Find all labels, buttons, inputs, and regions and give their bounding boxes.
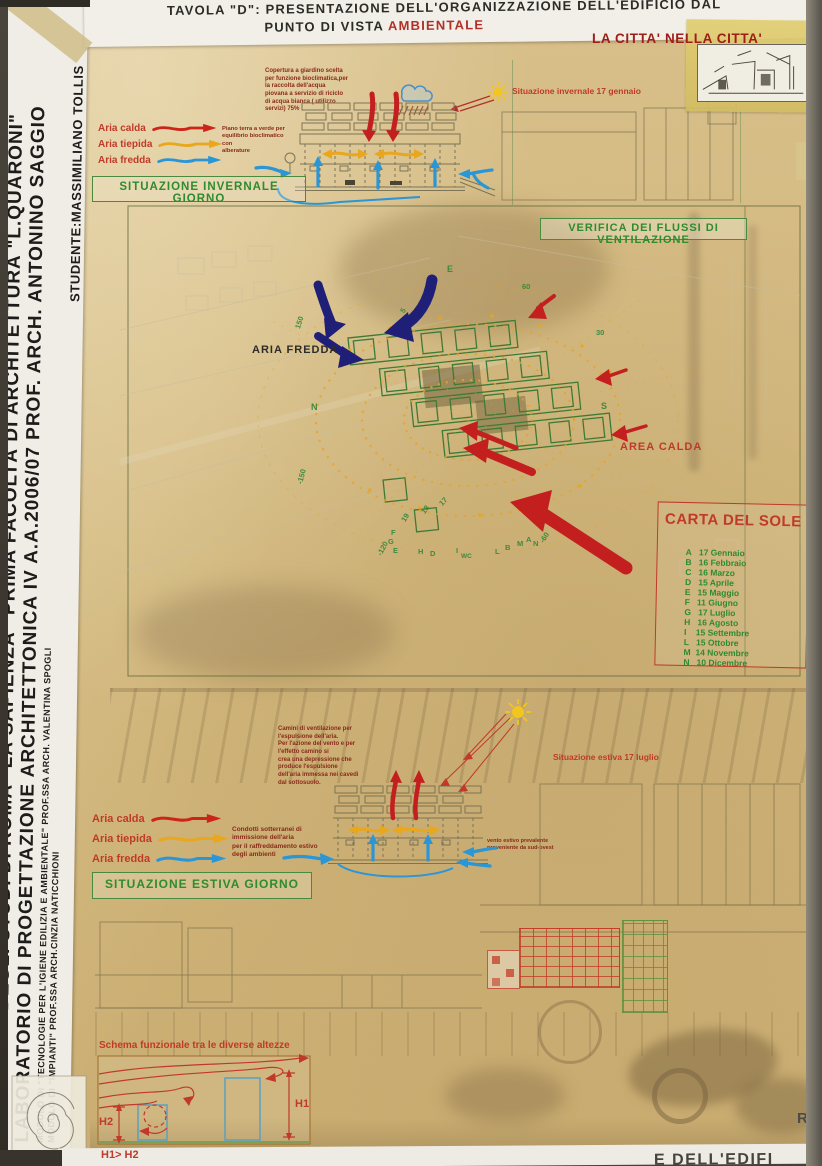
board-title-accent: AMBIENTALE — [388, 17, 484, 33]
red-checker-grid — [487, 950, 520, 989]
checker-cell — [506, 969, 514, 977]
winter-caption: Situazione invernale 17 gennaio — [512, 86, 641, 96]
ventilation-check-box: VERIFICA DEI FLUSSI DI VENTILAZIONE — [540, 218, 747, 240]
blue-arrow-icon — [157, 154, 223, 166]
blue-arrow-icon — [156, 852, 228, 865]
legend-aria-calda: Aria calda — [98, 122, 218, 134]
carta-letter: I — [684, 627, 687, 637]
height-schema-diagram — [95, 1048, 320, 1160]
legend-label: Aria fredda — [92, 853, 150, 865]
legend-aria-tiepida: Aria tiepida — [98, 138, 224, 150]
plan-tick: I — [456, 546, 458, 555]
schema-h1-label: H1 — [295, 1098, 309, 1110]
legend-aria-fredda: Aria fredda — [98, 154, 223, 166]
carta-del-sole-title: CARTA DEL SOLE — [658, 510, 808, 530]
next-board-edge: E DELL'EDIFI — [58, 1144, 822, 1166]
project-motto: LA CITTA' NELLA CITTA' — [592, 31, 818, 46]
checker-cell — [492, 978, 500, 986]
plan-tick: 30 — [596, 328, 604, 337]
orange-arrow-icon — [158, 138, 224, 150]
board-title-line2: PUNTO DI VISTA AMBIENTALE — [94, 15, 654, 37]
photographed-presentation-board: Copertura a giardino scelta per funzione… — [0, 0, 822, 1166]
carta-letter: D — [685, 577, 691, 587]
plan-tick: A — [526, 535, 531, 544]
carta-letter: E — [685, 587, 691, 597]
board-title-line2-prefix: PUNTO DI VISTA — [264, 18, 388, 35]
carta-letter: M — [683, 647, 690, 657]
photo-edge-right — [806, 0, 822, 1166]
green-facade-grid — [622, 920, 668, 1013]
plan-tick: H — [418, 547, 423, 556]
legend-aria-calda: Aria calda — [92, 812, 223, 825]
photo-edge-bottom-left — [0, 1150, 62, 1166]
red-arrow-icon — [151, 812, 223, 825]
schema-relation-label: H1> H2 — [101, 1149, 139, 1161]
carta-letter: A — [686, 547, 692, 557]
legend-aria-fredda: Aria fredda — [92, 852, 228, 865]
carta-letter: H — [684, 617, 690, 627]
next-board-partial-title: E DELL'EDIFI — [654, 1151, 774, 1166]
legend-label: Aria tiepida — [98, 139, 152, 150]
plan-tick: WC — [461, 553, 472, 560]
carta-letter: F — [685, 597, 690, 607]
carta-letter: C — [685, 567, 691, 577]
checker-cell — [492, 956, 500, 964]
winter-ground-note: Piano terra a verde per equilibrio biocl… — [222, 126, 292, 156]
legend-label: Aria calda — [98, 123, 146, 134]
summer-situation-box: SITUAZIONE ESTIVA GIORNO — [92, 872, 312, 899]
red-facade-grid — [519, 928, 620, 988]
legend-label: Aria tiepida — [92, 833, 152, 845]
legend-label: Aria fredda — [98, 155, 151, 166]
red-arrow-icon — [152, 122, 218, 134]
photo-edge-left — [0, 0, 8, 1166]
carta-date: 10 Dicembre — [696, 657, 747, 668]
plan-tick: E — [393, 546, 398, 555]
winter-elevations-outline — [480, 98, 810, 206]
carta-del-sole-box: CARTA DEL SOLE A 17 Gennaio B 16 Febbrai… — [654, 501, 809, 668]
summer-elevations-outline — [478, 778, 822, 938]
plan-tick: N — [533, 539, 538, 548]
schema-h2-label: H2 — [99, 1116, 113, 1128]
plan-tick: L — [495, 547, 500, 556]
summer-caption: Situazione estiva 17 luglio — [553, 752, 659, 762]
carta-letter: B — [685, 557, 691, 567]
plan-tick: S — [601, 401, 607, 411]
winter-situation-box: SITUAZIONE INVERNALE GIORNO — [92, 176, 306, 202]
plan-tick: F — [391, 528, 396, 537]
winter-situation-label: SITUAZIONE INVERNALE GIORNO — [119, 181, 278, 205]
plan-tick: G — [388, 537, 394, 546]
carta-row: N 10 Dicembre — [683, 657, 748, 668]
orange-arrow-icon — [158, 832, 230, 845]
carta-letter: N — [683, 657, 689, 667]
board-title-line1: TAVOLA "D": PRESENTAZIONE DELL'ORGANIZZA… — [94, 0, 794, 19]
plan-tick: 60 — [522, 282, 530, 291]
plan-tick: D — [430, 549, 435, 558]
summer-situation-label: SITUAZIONE ESTIVA GIORNO — [105, 877, 299, 891]
carta-letter: L — [684, 637, 689, 647]
summer-sun-icon — [430, 698, 535, 798]
area-calda-label: AREA CALDA — [620, 441, 702, 453]
photo-edge-top — [0, 0, 90, 7]
plan-tick: B — [505, 543, 510, 552]
aria-fredda-label: ARIA FREDDA — [252, 344, 338, 356]
legend-aria-tiepida: Aria tiepida — [92, 832, 230, 845]
plan-tick: E — [447, 264, 453, 274]
plan-tick: N — [311, 402, 318, 412]
legend-label: Aria calda — [92, 813, 145, 825]
plan-tick: M — [517, 539, 523, 548]
city-sketch-thumbnail — [697, 44, 813, 102]
lower-elevations-outline — [92, 915, 487, 1015]
carta-letter: G — [684, 607, 691, 617]
